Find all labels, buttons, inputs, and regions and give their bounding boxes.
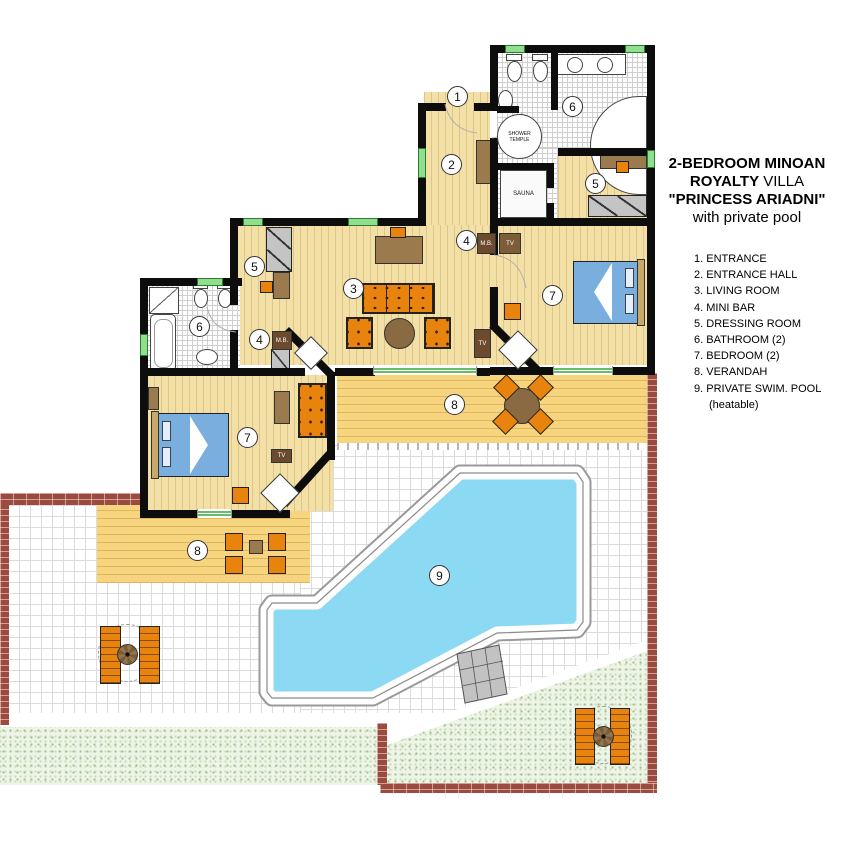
tv-tag: TV: [499, 233, 521, 254]
legend-num: 1.: [694, 253, 703, 265]
shower-temple: SHOWER TEMPLE: [497, 114, 542, 159]
legend-num: 2.: [694, 269, 703, 281]
tv-tag: TV: [271, 449, 292, 463]
room-label-bedroom-right: 7: [542, 285, 563, 306]
legend-label: BEDROOM (2): [706, 350, 779, 362]
sauna-label: SAUNA: [513, 191, 534, 197]
door-arcs: [0, 0, 843, 841]
shower-temple-label: SHOWER TEMPLE: [505, 131, 535, 143]
room-number: 8: [451, 398, 458, 412]
mini-bar-tag: M.B.: [477, 233, 496, 254]
room-number: 9: [436, 569, 443, 583]
legend-num: 9.: [694, 383, 703, 395]
room-number: 7: [244, 431, 251, 445]
room-number: 1: [454, 90, 461, 104]
room-label-entrance: 1: [447, 86, 468, 107]
legend-num: 7.: [694, 350, 703, 362]
title-line-3: "PRINCESS ARIADNI": [652, 191, 842, 209]
legend-label: LIVING ROOM: [706, 285, 779, 297]
room-label-bathroom-right: 6: [562, 96, 583, 117]
room-label-bedroom-left: 7: [237, 427, 258, 448]
tv-label: TV: [479, 341, 487, 347]
room-label-bathroom-left: 6: [189, 316, 210, 337]
plan-title: 2-BEDROOM MINOAN ROYALTY VILLA "PRINCESS…: [652, 155, 842, 227]
floor-plan: SHOWER TEMPLE SAUNA M.B. M.B. TV TV: [0, 0, 843, 841]
tv-label: TV: [278, 453, 286, 459]
room-label-entrance-hall: 2: [441, 154, 462, 175]
title-line-4: with private pool: [652, 209, 842, 227]
legend-label: ENTRANCE HALL: [706, 269, 797, 281]
legend-item: 2. ENTRANCE HALL: [694, 267, 821, 283]
sauna-room: SAUNA: [500, 170, 547, 218]
legend-item: 5. DRESSING ROOM: [694, 316, 821, 332]
title-line-2-thin: VILLA: [759, 173, 804, 190]
title-line-1: 2-BEDROOM MINOAN: [652, 155, 842, 173]
room-number: 4: [256, 333, 263, 347]
legend-label: ENTRANCE: [706, 253, 767, 265]
legend-label: PRIVATE SWIM. POOL: [706, 383, 821, 395]
room-number: 5: [251, 260, 258, 274]
legend-num: 4.: [694, 302, 703, 314]
legend: 1. ENTRANCE 2. ENTRANCE HALL 3. LIVING R…: [694, 251, 821, 413]
room-label-pool: 9: [429, 565, 450, 586]
room-label-mini-bar-left: 4: [249, 329, 270, 350]
legend-item: 8. VERANDAH: [694, 364, 821, 380]
room-label-dressing-right: 5: [585, 173, 606, 194]
room-label-living-room: 3: [343, 278, 364, 299]
legend-label: MINI BAR: [706, 302, 755, 314]
room-number: 4: [463, 234, 470, 248]
room-number: 2: [448, 158, 455, 172]
legend-num: 8.: [694, 366, 703, 378]
tv-tag: TV: [474, 329, 491, 358]
room-label-dressing-left: 5: [244, 256, 265, 277]
legend-item: 7. BEDROOM (2): [694, 348, 821, 364]
room-number: 8: [194, 544, 201, 558]
legend-item: 9. PRIVATE SWIM. POOL: [694, 381, 821, 397]
room-number: 5: [592, 177, 599, 191]
legend-label: BATHROOM (2): [706, 334, 785, 346]
title-line-2-bold: ROYALTY: [690, 173, 759, 190]
legend-label: VERANDAH: [706, 366, 767, 378]
mini-bar-label: M.B.: [480, 241, 492, 247]
legend-note: (heatable): [694, 397, 821, 413]
legend-num: 3.: [694, 285, 703, 297]
legend-num: 5.: [694, 318, 703, 330]
mini-bar-tag: M.B.: [272, 331, 292, 350]
legend-label: DRESSING ROOM: [706, 318, 801, 330]
room-label-verandah-lower: 8: [187, 540, 208, 561]
room-label-mini-bar-right: 4: [456, 230, 477, 251]
legend-item: 1. ENTRANCE: [694, 251, 821, 267]
legend-item: 4. MINI BAR: [694, 300, 821, 316]
room-number: 6: [196, 320, 203, 334]
legend-item: 6. BATHROOM (2): [694, 332, 821, 348]
legend-num: 6.: [694, 334, 703, 346]
room-number: 3: [350, 282, 357, 296]
room-number: 7: [549, 289, 556, 303]
room-label-verandah-upper: 8: [444, 394, 465, 415]
tv-label: TV: [506, 241, 514, 247]
room-number: 6: [569, 100, 576, 114]
title-line-2: ROYALTY VILLA: [652, 173, 842, 191]
legend-item: 3. LIVING ROOM: [694, 283, 821, 299]
mini-bar-label: M.B.: [276, 338, 288, 344]
